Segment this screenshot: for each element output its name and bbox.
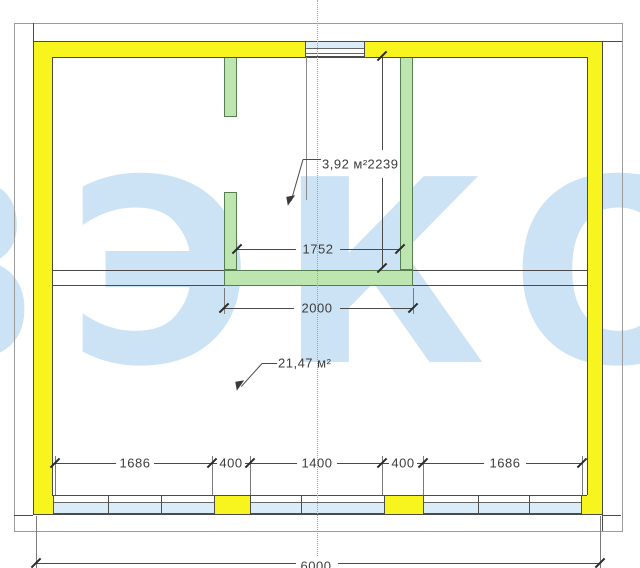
right-wall — [587, 41, 603, 514]
stub-line — [33, 23, 34, 41]
extension-line — [413, 288, 414, 314]
right-wall-inner-line — [587, 57, 588, 495]
partition-line-right-2 — [413, 285, 587, 286]
partition-left-lower — [224, 192, 237, 270]
window-divider — [478, 496, 479, 513]
room-large-area-label: 21,47 м² — [278, 356, 331, 371]
dim-line-segment — [224, 308, 294, 309]
left-wall-outer-line — [33, 41, 34, 514]
window-divider — [529, 496, 530, 513]
partition-line-right — [413, 270, 587, 271]
dim-line-segment — [382, 57, 383, 150]
stub-line — [602, 515, 603, 531]
leader-line — [262, 363, 277, 364]
left-wall-inner-line — [52, 57, 53, 495]
dim-overall-width: 6000 — [301, 559, 332, 568]
centerline — [317, 0, 318, 556]
stub-line — [602, 41, 622, 42]
top-wall-inner-line — [52, 57, 587, 58]
dim-bottom-1: 1686 — [120, 456, 151, 471]
stub-line — [603, 515, 621, 516]
dim-line-segment — [36, 563, 296, 564]
leader-arrow — [286, 195, 296, 205]
dim-line-segment — [55, 463, 116, 464]
dim-line-segment — [338, 563, 600, 564]
dim-inner-room-height: 2239 — [368, 157, 399, 172]
partition-left-upper — [224, 57, 237, 117]
left-wall — [33, 41, 52, 514]
dim-bottom-3: 1400 — [302, 456, 333, 471]
window-divider — [161, 496, 162, 513]
extension-line — [224, 288, 225, 314]
dim-line-segment — [340, 308, 413, 309]
dim-inner-room-width: 1752 — [303, 242, 334, 257]
window-divider — [301, 496, 302, 513]
dim-line-segment — [245, 463, 297, 464]
dim-outer-room-width: 2000 — [302, 301, 333, 316]
partition-bottom — [224, 270, 413, 286]
dim-line-segment — [526, 463, 582, 464]
bottom-window-3 — [423, 495, 582, 514]
dim-line-segment — [382, 178, 383, 268]
partition-right — [400, 57, 413, 270]
floor-plan-canvas: ВЭКО — [0, 0, 640, 568]
right-wall-outer-line — [602, 41, 603, 514]
leader-arrow — [235, 380, 245, 390]
top-window — [305, 41, 365, 57]
stub-line — [14, 515, 33, 516]
bottom-window-1 — [53, 495, 215, 514]
window-sill-line — [306, 53, 364, 54]
dim-line-segment — [237, 249, 296, 250]
window-glazing-line — [306, 48, 364, 49]
dim-line-segment — [340, 249, 400, 250]
window-glass — [54, 503, 214, 513]
dim-line-segment — [154, 463, 217, 464]
room-small-area-label: 3,92 м² — [322, 157, 368, 172]
dim-line-segment — [417, 463, 484, 464]
partition-line-left-2 — [52, 285, 224, 286]
leader-line — [303, 159, 321, 160]
window-divider — [108, 496, 109, 513]
bottom-wall-outer-line — [33, 514, 603, 515]
partition-line-left — [52, 270, 224, 271]
construction-line — [306, 57, 307, 200]
window-glass — [424, 503, 581, 513]
dim-bottom-2: 400 — [219, 456, 242, 471]
dim-bottom-5: 1686 — [490, 456, 521, 471]
dim-bottom-4: 400 — [391, 456, 414, 471]
